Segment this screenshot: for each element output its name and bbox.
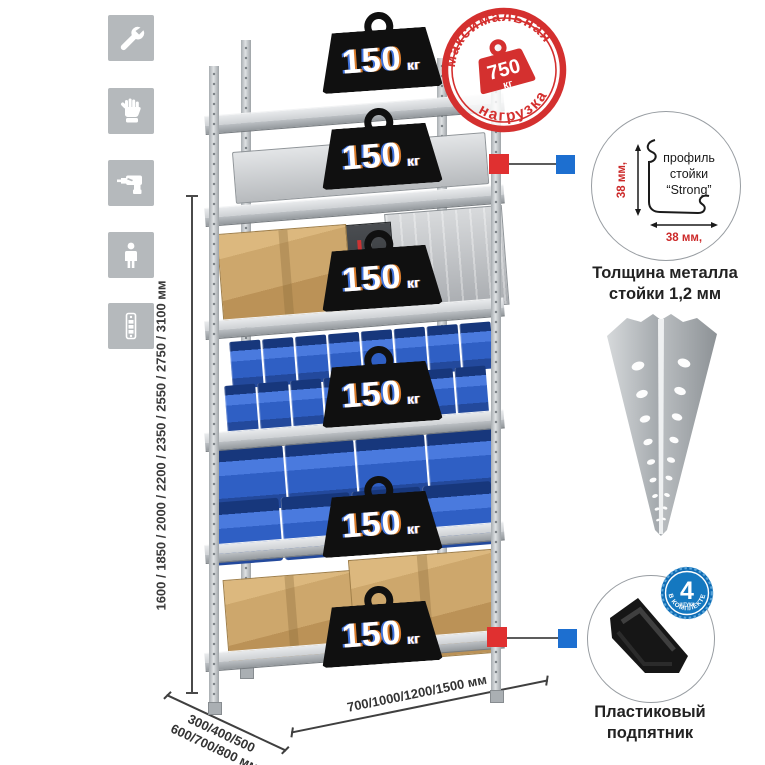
product-infographic: 1600 / 1850 / 2000 / 2200 / 2350 / 2550 … xyxy=(0,0,765,765)
shelf-load-badge: 150кг xyxy=(317,226,442,312)
gloves-icon xyxy=(108,88,154,134)
vertical-dim-arrow xyxy=(635,144,641,216)
shelf-load-badge: 150кг xyxy=(317,342,442,428)
wrench-icon xyxy=(108,15,154,61)
metal-angle-image xyxy=(597,306,725,544)
dim-38mm-vertical: 38 мм, xyxy=(616,162,628,198)
shelf-load-badge: 150кг xyxy=(317,472,442,558)
svg-text:стойки: стойки xyxy=(670,167,708,181)
metal-thickness-caption: Толщина металла стойки 1,2 мм xyxy=(580,263,750,306)
profile-detail-circle: 38 мм, 38 мм, профиль стойки “Strong” xyxy=(591,111,741,261)
horizontal-dim-arrow xyxy=(650,222,718,228)
shelf-load-badge: 150кг xyxy=(317,8,442,94)
red-marker-top xyxy=(489,154,509,174)
height-dim-cap-bottom xyxy=(186,692,198,694)
rack-foot xyxy=(490,690,504,703)
height-dimension-label: 1600 / 1850 / 2000 / 2200 / 2350 / 2550 … xyxy=(148,196,174,694)
callout-line-top xyxy=(506,163,560,165)
shelf-load-badge: 150кг xyxy=(317,582,442,668)
rack-upright-front-left xyxy=(209,66,219,704)
svg-text:профиль: профиль xyxy=(663,151,715,165)
max-load-stamp: максимальная нагрузка 750 кг xyxy=(423,0,585,151)
blue-marker-bottom xyxy=(558,629,577,648)
profile-label: профиль стойки “Strong” xyxy=(663,151,715,197)
height-dimension-line xyxy=(191,196,193,693)
dim-38mm-horizontal: 38 мм, xyxy=(666,232,702,244)
blue-marker-top xyxy=(556,155,575,174)
plastic-foot-caption: Пластиковый подпятник xyxy=(584,702,716,745)
shelf-load-badge: 150кг xyxy=(317,104,442,190)
rack-foot xyxy=(208,702,222,715)
callout-line-bottom xyxy=(504,637,562,639)
quantity-badge: 4 штуки в комплекте xyxy=(660,566,714,620)
width-dimension: 700/1000/1200/1500 мм xyxy=(287,660,548,734)
svg-text:“Strong”: “Strong” xyxy=(666,183,711,197)
red-marker-bottom xyxy=(487,627,507,647)
height-dim-cap-top xyxy=(186,195,198,197)
